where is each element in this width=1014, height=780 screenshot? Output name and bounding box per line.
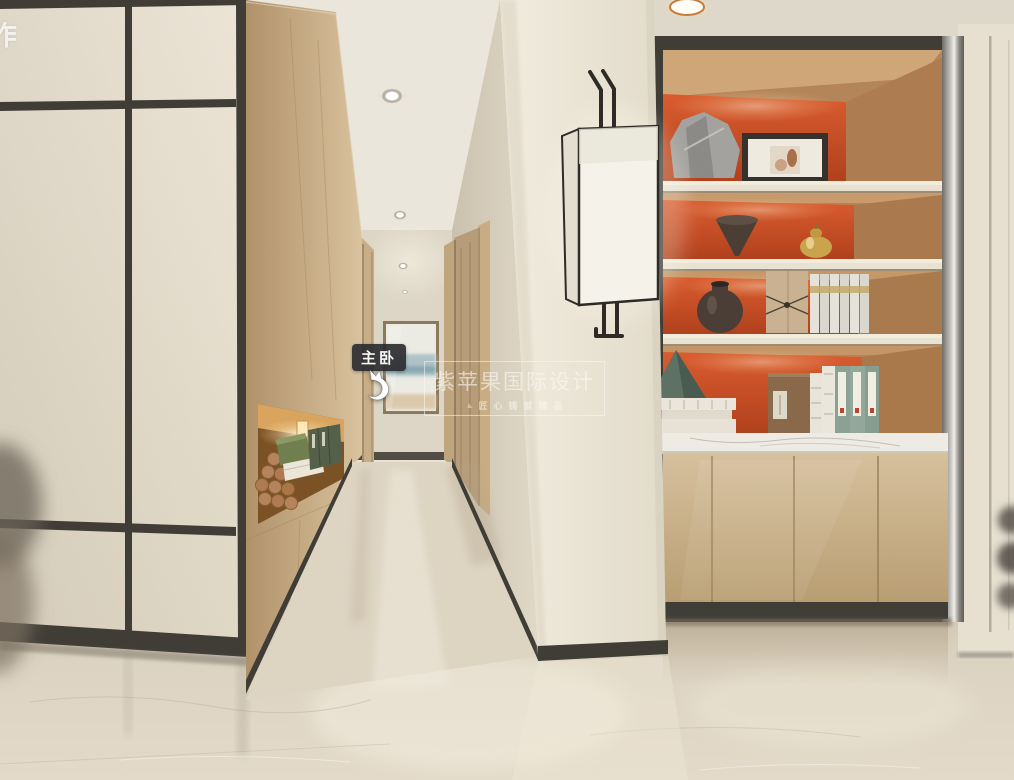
bookshelf — [650, 36, 964, 685]
hotspot-label[interactable]: 主卧 — [352, 344, 406, 371]
interior-render: 作 主卧 紫苹果国际设计 匠心铸就精品 — [0, 0, 1014, 780]
hotspot-master-bedroom[interactable]: 主卧 — [352, 344, 422, 402]
cabinet-plinth — [663, 602, 948, 619]
partition-mullion — [125, 4, 132, 634]
right-edge-blur-object — [997, 506, 1014, 609]
partition-screen — [0, 0, 252, 755]
cabinet-reflection — [663, 619, 948, 685]
hotspot-arrow-icon[interactable] — [366, 370, 394, 402]
render-scene — [0, 0, 1014, 780]
corner-watermark-text: 作 — [0, 14, 19, 53]
right-wall-groove-2 — [1008, 40, 1010, 630]
lower-cabinet — [663, 453, 948, 619]
lamp-shade-side — [562, 129, 579, 305]
green-book-set — [822, 366, 879, 433]
photo-frame — [742, 133, 828, 181]
right-wall-groove — [989, 36, 992, 632]
wrapped-book-bundle — [766, 271, 808, 333]
marble-counter — [656, 433, 948, 454]
right-room — [648, 0, 1014, 685]
column-reflection — [512, 656, 688, 780]
brown-book-box — [768, 373, 822, 433]
